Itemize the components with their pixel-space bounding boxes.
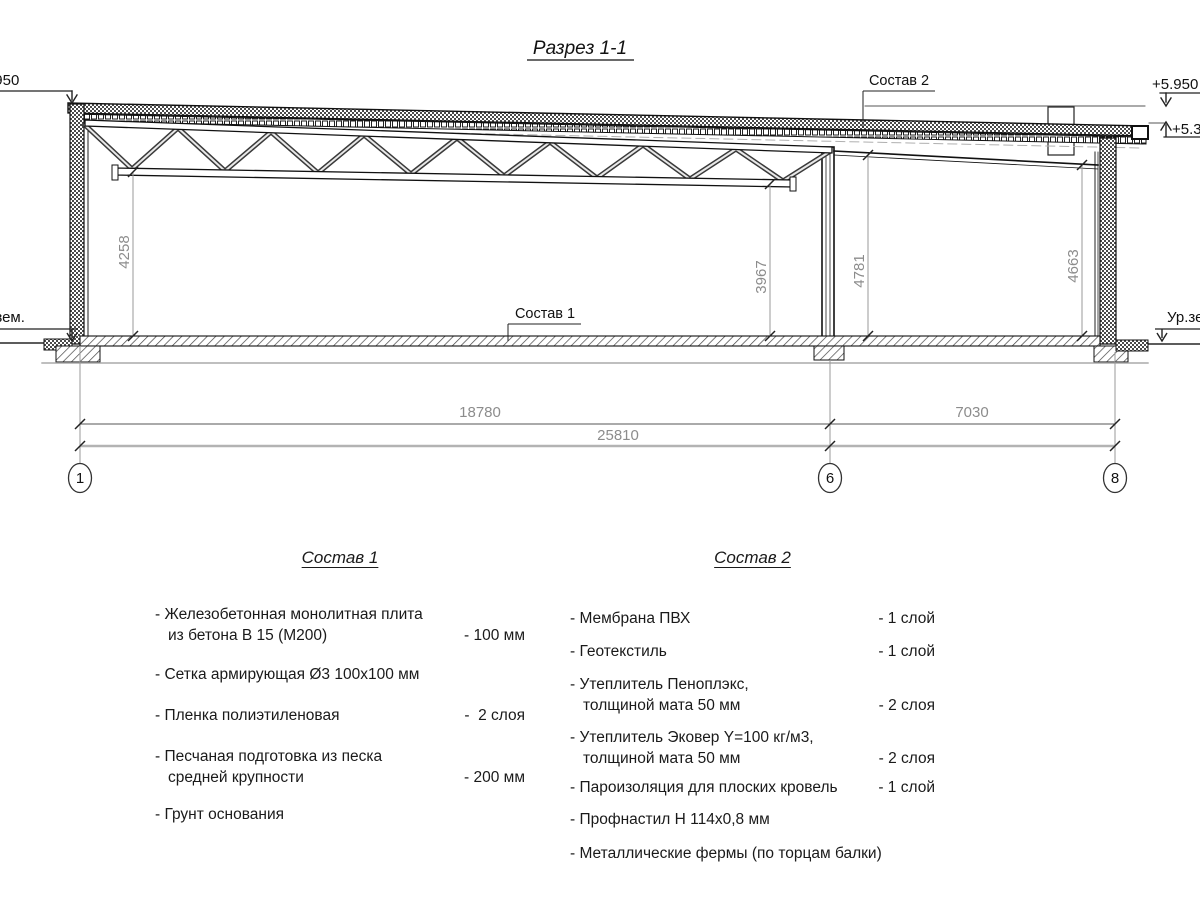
list-item: - Утеплитель Пеноплэкс, толщиной мата 50… bbox=[570, 674, 935, 716]
truss-end-plate-right bbox=[790, 177, 796, 191]
blind-area-right bbox=[1116, 340, 1148, 351]
drawing-sheet: Разрез 1-1 bbox=[0, 0, 1200, 900]
dim-25810: 25810 bbox=[597, 427, 639, 444]
dim-4663: 4663 bbox=[1065, 249, 1082, 282]
roof-end-cap bbox=[1132, 126, 1148, 139]
list-item: - Сетка армирующая Ø3 100х100 мм bbox=[155, 664, 525, 685]
drawing-title: Разрез 1-1 bbox=[533, 38, 627, 59]
floor-slab bbox=[80, 336, 1100, 346]
foundation-middle bbox=[814, 346, 844, 360]
list-item: - Геотекстиль - 1 слой bbox=[570, 641, 935, 662]
dim-7030: 7030 bbox=[955, 404, 988, 421]
ground-right-label: Ур.зем. bbox=[1167, 309, 1200, 326]
list-item: - Пароизоляция для плоских кровель - 1 с… bbox=[570, 777, 935, 798]
sostav2-block: Состав 2 - Мембрана ПВХ - 1 слой - Геоте… bbox=[570, 548, 935, 864]
list-item: - Грунт основания bbox=[155, 804, 525, 825]
list-item: - Утеплитель Эковер Y=100 кг/м3, толщино… bbox=[570, 727, 935, 769]
truss-end-plate-left bbox=[112, 165, 118, 180]
right-span-beam2 bbox=[834, 155, 1098, 169]
list-item: - Профнастил Н 114х0,8 мм bbox=[570, 809, 935, 830]
building-section bbox=[0, 103, 1200, 363]
ground-left-label: Ур.зем. bbox=[0, 309, 25, 326]
elevation-arrow-down-right bbox=[1161, 93, 1171, 106]
sostav1-drawing-label: Состав 1 bbox=[515, 306, 575, 322]
sostav2-list: - Мембрана ПВХ - 1 слой - Геотекстиль - … bbox=[570, 608, 935, 864]
foundation-left bbox=[56, 346, 100, 362]
dim-3967: 3967 bbox=[753, 260, 770, 293]
list-item: - Мембрана ПВХ - 1 слой bbox=[570, 608, 935, 629]
list-item: - Железобетонная монолитная плита из бет… bbox=[155, 604, 525, 646]
column-axis6 bbox=[822, 147, 834, 343]
dim-4781: 4781 bbox=[851, 254, 868, 287]
elevation-arrow-down-left bbox=[67, 91, 77, 103]
list-item: - Пленка полиэтиленовая - 2 слоя bbox=[155, 705, 525, 726]
axis-label-8: 8 bbox=[1111, 470, 1119, 487]
elevation-right-top-value: +5.950 bbox=[1152, 76, 1198, 93]
sostav2-heading: Состав 2 bbox=[570, 548, 935, 568]
left-wall bbox=[70, 104, 84, 344]
axis-label-6: 6 bbox=[826, 470, 834, 487]
elevation-arrow-up-right bbox=[1161, 122, 1171, 136]
section-drawing: Разрез 1-1 bbox=[0, 0, 1200, 520]
sostav1-heading: Состав 1 bbox=[155, 548, 525, 568]
list-item: - Металлические фермы (по торцам балки) bbox=[570, 843, 935, 864]
axis-label-1: 1 bbox=[76, 470, 84, 487]
sostav1-list: - Железобетонная монолитная плита из бет… bbox=[155, 604, 525, 825]
sostav1-block: Состав 1 - Железобетонная монолитная пли… bbox=[155, 548, 525, 825]
grid-axes: 1 6 8 bbox=[69, 464, 1127, 493]
dim-18780: 18780 bbox=[459, 404, 501, 421]
list-item: - Песчаная подготовка из песка средней к… bbox=[155, 746, 525, 788]
dim-4258: 4258 bbox=[116, 235, 133, 268]
elevation-right-mid-value: +5.380 bbox=[1172, 121, 1200, 138]
elevation-left-value: +5.950 bbox=[0, 72, 19, 89]
sostav2-drawing-label: Состав 2 bbox=[869, 73, 929, 89]
ground-arrow-right bbox=[1157, 329, 1167, 341]
right-wall bbox=[1100, 138, 1116, 344]
